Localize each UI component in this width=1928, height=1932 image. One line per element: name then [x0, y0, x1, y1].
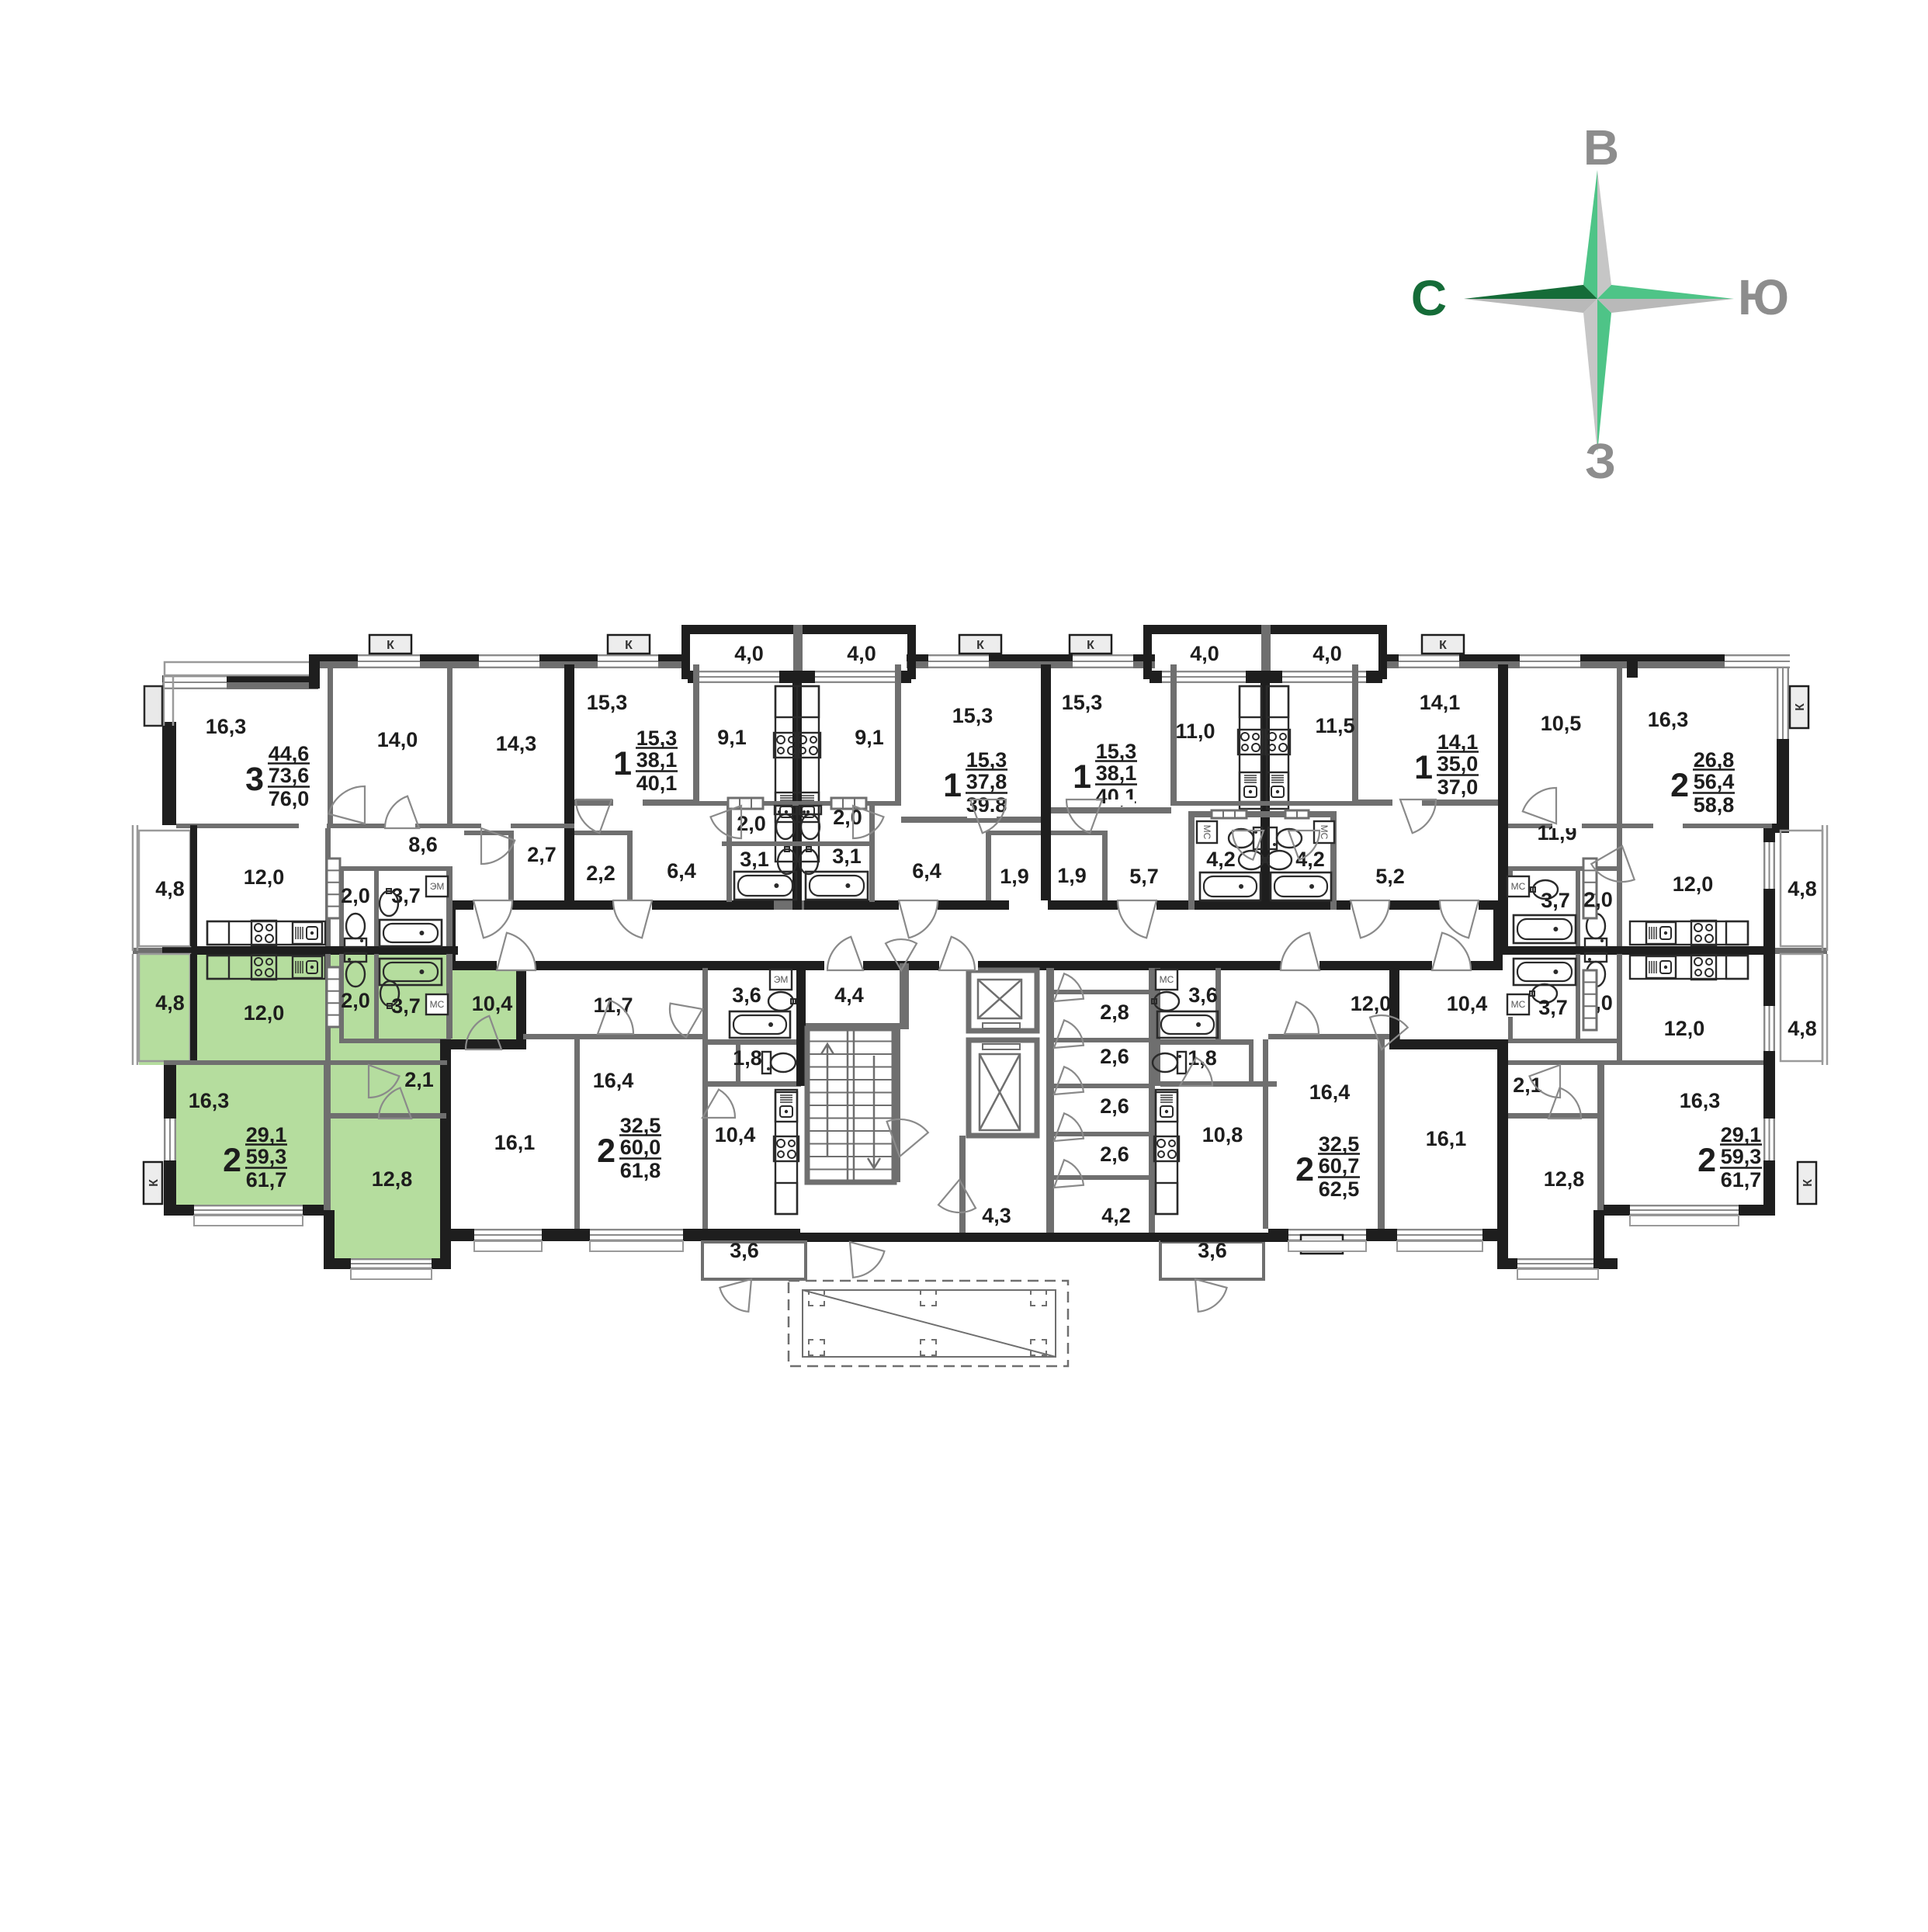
svg-text:4,4: 4,4: [834, 983, 864, 1007]
svg-text:4,8: 4,8: [155, 877, 185, 900]
svg-text:37,8: 37,8: [966, 770, 1007, 793]
svg-text:16,3: 16,3: [206, 715, 247, 738]
svg-text:2: 2: [1295, 1151, 1314, 1188]
svg-text:В: В: [1583, 120, 1619, 175]
svg-text:1,8: 1,8: [733, 1046, 762, 1070]
svg-text:К: К: [147, 1179, 161, 1187]
svg-text:1,9: 1,9: [1000, 865, 1029, 888]
svg-text:4,8: 4,8: [1788, 1017, 1817, 1040]
svg-text:6,4: 6,4: [912, 859, 941, 883]
svg-text:К: К: [1794, 703, 1807, 711]
svg-text:2,8: 2,8: [1100, 1001, 1129, 1024]
svg-text:73,6: 73,6: [269, 764, 310, 787]
svg-text:6,4: 6,4: [667, 859, 696, 883]
svg-text:16,3: 16,3: [189, 1089, 230, 1112]
svg-text:МС: МС: [1160, 974, 1174, 985]
svg-text:10,8: 10,8: [1202, 1123, 1243, 1146]
svg-text:3,6: 3,6: [1188, 983, 1218, 1007]
svg-text:38,1: 38,1: [636, 748, 678, 772]
svg-text:10,4: 10,4: [715, 1123, 756, 1146]
svg-text:1,9: 1,9: [1057, 864, 1087, 887]
svg-text:59,3: 59,3: [1721, 1145, 1762, 1168]
svg-text:14,1: 14,1: [1420, 691, 1461, 714]
svg-text:58,8: 58,8: [1694, 793, 1735, 817]
svg-text:14,1: 14,1: [1437, 730, 1479, 754]
svg-text:З: З: [1585, 433, 1616, 489]
svg-text:9,1: 9,1: [717, 726, 747, 749]
svg-text:16,4: 16,4: [593, 1069, 634, 1092]
svg-text:62,5: 62,5: [1319, 1178, 1360, 1201]
svg-text:Ю: Ю: [1738, 269, 1789, 325]
svg-text:8,6: 8,6: [408, 833, 438, 856]
svg-text:3,1: 3,1: [832, 845, 862, 868]
svg-text:60,7: 60,7: [1319, 1154, 1360, 1178]
svg-text:3,6: 3,6: [732, 983, 761, 1007]
svg-text:МС: МС: [1511, 999, 1526, 1010]
svg-text:5,7: 5,7: [1129, 865, 1159, 888]
svg-text:61,7: 61,7: [1721, 1168, 1762, 1191]
svg-text:4,0: 4,0: [1312, 642, 1342, 665]
svg-text:44,6: 44,6: [269, 742, 310, 765]
svg-text:14,3: 14,3: [496, 732, 537, 755]
svg-text:2,0: 2,0: [341, 884, 370, 907]
svg-text:15,3: 15,3: [966, 748, 1007, 772]
svg-text:МС: МС: [430, 999, 445, 1010]
svg-text:2,6: 2,6: [1100, 1143, 1129, 1166]
svg-text:76,0: 76,0: [269, 787, 310, 810]
svg-text:2: 2: [1670, 767, 1689, 804]
svg-text:16,1: 16,1: [494, 1131, 536, 1154]
svg-text:15,3: 15,3: [952, 704, 993, 727]
svg-text:3,7: 3,7: [1541, 889, 1570, 912]
svg-text:12,8: 12,8: [372, 1167, 413, 1191]
svg-text:3,7: 3,7: [1538, 996, 1568, 1019]
svg-text:2,6: 2,6: [1100, 1045, 1129, 1068]
svg-text:1: 1: [613, 745, 632, 782]
svg-text:1: 1: [943, 767, 962, 804]
svg-text:56,4: 56,4: [1694, 770, 1735, 793]
svg-text:61,8: 61,8: [620, 1159, 661, 1182]
svg-text:МС: МС: [1511, 881, 1526, 892]
svg-text:К: К: [625, 639, 633, 652]
svg-text:15,3: 15,3: [1096, 740, 1137, 763]
svg-text:МС: МС: [1319, 825, 1330, 840]
svg-text:15,3: 15,3: [636, 727, 678, 750]
svg-text:16,3: 16,3: [1648, 708, 1689, 731]
svg-text:3,1: 3,1: [740, 848, 769, 871]
svg-text:16,3: 16,3: [1680, 1089, 1721, 1112]
svg-text:9,1: 9,1: [855, 726, 884, 749]
svg-text:26,8: 26,8: [1694, 748, 1735, 772]
svg-text:1: 1: [1414, 749, 1433, 786]
svg-text:2: 2: [597, 1132, 616, 1170]
svg-text:2,6: 2,6: [1100, 1094, 1129, 1118]
svg-text:К: К: [387, 639, 394, 652]
svg-text:2,1: 2,1: [404, 1068, 434, 1091]
svg-text:4,8: 4,8: [1788, 877, 1817, 900]
svg-text:К: К: [976, 639, 984, 652]
svg-text:59,3: 59,3: [246, 1145, 287, 1168]
svg-text:11,5: 11,5: [1315, 714, 1354, 737]
svg-text:37,0: 37,0: [1437, 775, 1479, 799]
svg-text:15,3: 15,3: [1062, 691, 1103, 714]
svg-text:ЭМ: ЭМ: [774, 974, 789, 985]
svg-text:2,7: 2,7: [527, 843, 557, 866]
svg-text:4,0: 4,0: [847, 642, 876, 665]
svg-text:14,0: 14,0: [377, 728, 418, 751]
svg-text:15,3: 15,3: [587, 691, 628, 714]
svg-text:4,0: 4,0: [1190, 642, 1219, 665]
svg-text:3,6: 3,6: [730, 1239, 759, 1262]
svg-text:32,5: 32,5: [1319, 1132, 1360, 1156]
svg-text:2,0: 2,0: [341, 989, 370, 1012]
svg-text:К: К: [1801, 1179, 1815, 1187]
svg-text:61,7: 61,7: [246, 1168, 287, 1191]
svg-text:ЭМ: ЭМ: [430, 881, 445, 892]
svg-text:38,1: 38,1: [1096, 761, 1137, 785]
svg-text:4,3: 4,3: [982, 1204, 1011, 1227]
svg-text:3: 3: [245, 761, 264, 798]
svg-text:2,0: 2,0: [1583, 888, 1613, 911]
svg-text:12,0: 12,0: [1351, 992, 1392, 1015]
svg-text:3,6: 3,6: [1198, 1239, 1227, 1262]
svg-text:1: 1: [1073, 758, 1091, 796]
svg-text:С: С: [1411, 270, 1447, 326]
svg-text:11,0: 11,0: [1175, 720, 1215, 743]
svg-text:К: К: [1087, 639, 1094, 652]
svg-text:16,4: 16,4: [1309, 1080, 1351, 1104]
svg-text:4,2: 4,2: [1101, 1204, 1131, 1227]
svg-text:4,0: 4,0: [734, 642, 764, 665]
svg-text:5,2: 5,2: [1375, 865, 1405, 888]
svg-text:12,8: 12,8: [1544, 1167, 1585, 1191]
svg-text:29,1: 29,1: [1721, 1123, 1762, 1146]
svg-text:60,0: 60,0: [620, 1136, 661, 1159]
svg-text:12,0: 12,0: [1664, 1017, 1705, 1040]
svg-text:29,1: 29,1: [246, 1123, 287, 1146]
svg-text:10,4: 10,4: [1447, 992, 1488, 1015]
svg-text:10,5: 10,5: [1541, 712, 1582, 735]
svg-text:32,5: 32,5: [620, 1114, 661, 1137]
svg-text:40,1: 40,1: [636, 772, 678, 795]
svg-text:2: 2: [1697, 1142, 1716, 1179]
svg-text:12,0: 12,0: [244, 865, 285, 889]
svg-text:3,7: 3,7: [391, 994, 421, 1018]
svg-text:10,4: 10,4: [472, 992, 513, 1015]
svg-text:МС: МС: [1202, 825, 1212, 840]
svg-text:16,1: 16,1: [1426, 1127, 1467, 1150]
svg-text:4,2: 4,2: [1206, 848, 1236, 871]
svg-text:12,0: 12,0: [1673, 872, 1714, 896]
svg-text:2,2: 2,2: [586, 862, 616, 885]
svg-text:2: 2: [223, 1142, 241, 1179]
svg-text:12,0: 12,0: [244, 1001, 285, 1025]
svg-text:35,0: 35,0: [1437, 752, 1479, 775]
svg-text:4,8: 4,8: [155, 991, 185, 1015]
svg-text:К: К: [1439, 639, 1447, 652]
